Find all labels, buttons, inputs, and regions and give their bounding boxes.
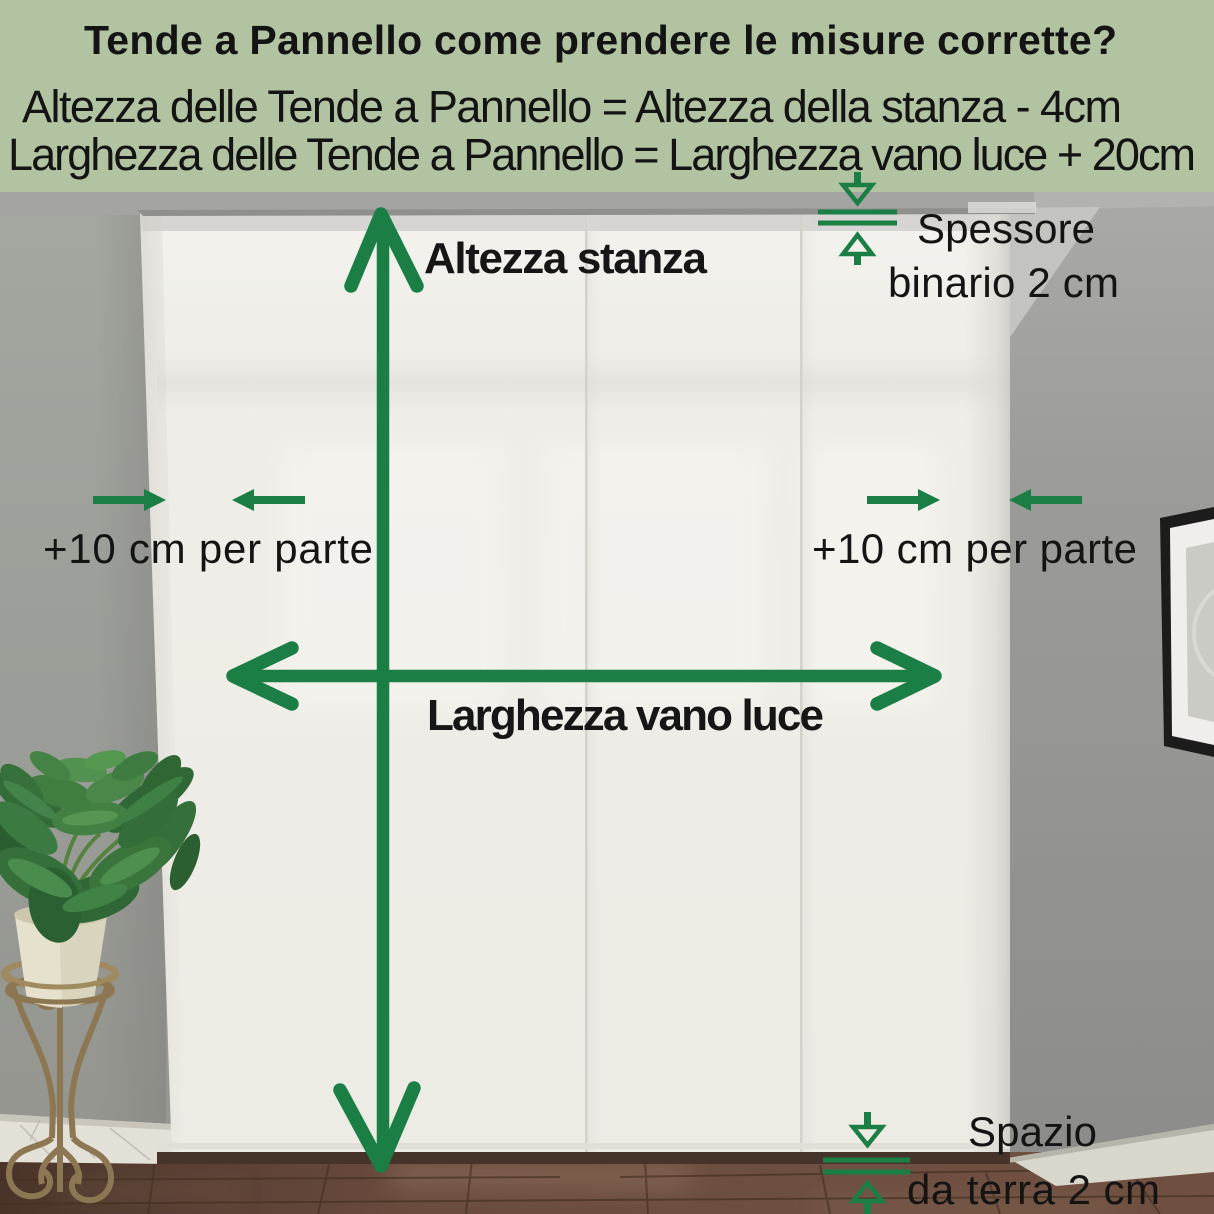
svg-text:da terra 2 cm: da terra 2 cm: [907, 1166, 1160, 1213]
svg-text:binario 2 cm: binario 2 cm: [888, 259, 1119, 306]
svg-text:+10 cm per parte: +10 cm per parte: [43, 525, 373, 572]
svg-text:Larghezza vano luce: Larghezza vano luce: [427, 691, 824, 740]
svg-text:Spazio: Spazio: [968, 1108, 1097, 1155]
svg-text:Altezza delle Tende a Pannello: Altezza delle Tende a Pannello = Altezza…: [22, 81, 1122, 132]
svg-text:Spessore: Spessore: [917, 205, 1095, 252]
svg-text:Tende a Pannello come prendere: Tende a Pannello come prendere le misure…: [84, 17, 1117, 63]
svg-text:+10 cm per parte: +10 cm per parte: [812, 525, 1137, 572]
svg-text:Larghezza delle Tende a Pannel: Larghezza delle Tende a Pannello = Largh…: [8, 129, 1196, 180]
svg-text:Altezza stanza: Altezza stanza: [424, 234, 708, 283]
